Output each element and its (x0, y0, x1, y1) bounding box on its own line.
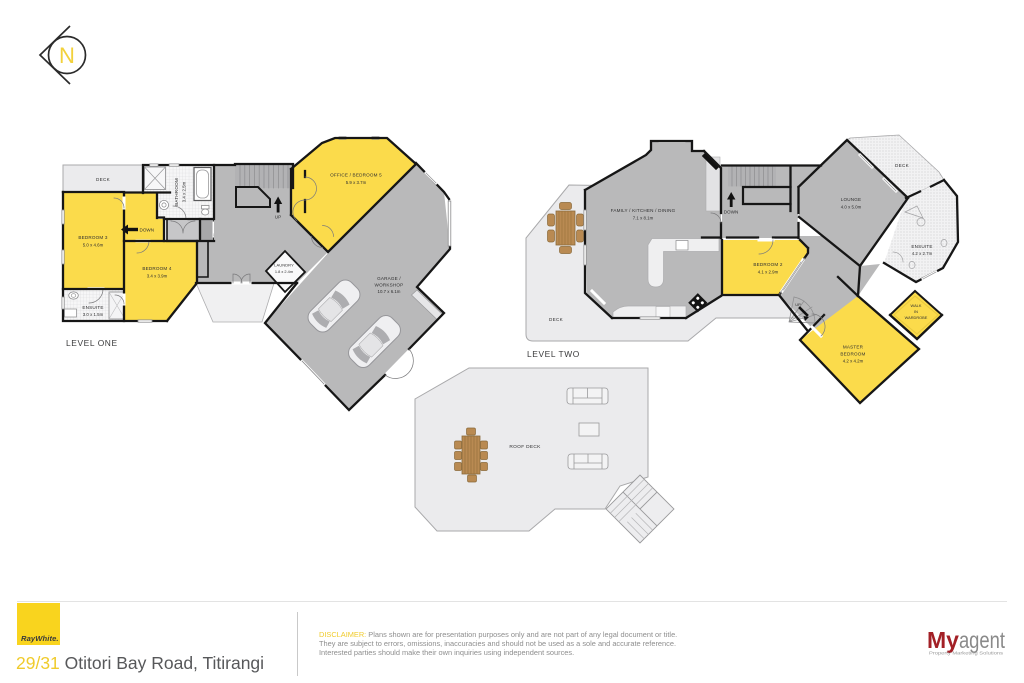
svg-text:WARDROBE: WARDROBE (905, 315, 928, 320)
svg-text:FAMILY / KITCHEN / DINING: FAMILY / KITCHEN / DINING (611, 208, 676, 213)
svg-text:DECK: DECK (549, 317, 564, 322)
svg-text:29/31 Otitori Bay Road, Titira: 29/31 Otitori Bay Road, Titirangi (16, 653, 264, 673)
svg-text:LEVEL TWO: LEVEL TWO (527, 349, 580, 359)
svg-text:Property Marketing Solutions: Property Marketing Solutions (929, 651, 1004, 657)
svg-text:LOUNGE: LOUNGE (841, 197, 862, 202)
svg-text:4.1 x 2.9m: 4.1 x 2.9m (758, 270, 779, 275)
svg-text:UP: UP (795, 302, 801, 307)
svg-text:5.9 x 3.7m: 5.9 x 3.7m (346, 180, 367, 185)
svg-text:LAUNDRY: LAUNDRY (274, 263, 294, 268)
svg-text:RayWhite.: RayWhite. (21, 634, 59, 643)
svg-text:OFFICE / BEDROOM 5: OFFICE / BEDROOM 5 (330, 173, 382, 178)
svg-text:BEDROOM 2: BEDROOM 2 (753, 262, 783, 267)
svg-text:WALK: WALK (911, 303, 922, 308)
svg-text:3.4 x 2.5m: 3.4 x 2.5m (182, 181, 187, 202)
svg-text:IN: IN (914, 309, 918, 314)
svg-text:ENSUITE: ENSUITE (82, 305, 103, 310)
svg-text:BATHROOM: BATHROOM (174, 178, 179, 206)
svg-text:Myagent: Myagent (927, 627, 1005, 653)
svg-text:BEDROOM 4: BEDROOM 4 (142, 266, 172, 271)
svg-text:BEDROOM: BEDROOM (840, 352, 865, 357)
svg-text:1.8 x 2.4m: 1.8 x 2.4m (275, 269, 293, 274)
svg-text:DISCLAIMER: Plans shown are fo: DISCLAIMER: Plans shown are for presenta… (319, 630, 677, 639)
svg-text:3.0 x 1.5m: 3.0 x 1.5m (83, 312, 104, 317)
svg-text:WORKSHOP: WORKSHOP (375, 283, 404, 288)
svg-text:LEVEL ONE: LEVEL ONE (66, 338, 118, 348)
svg-text:Interested parties should make: Interested parties should make their own… (319, 648, 574, 657)
svg-text:MASTER: MASTER (843, 345, 864, 350)
svg-text:BEDROOM 3: BEDROOM 3 (78, 235, 108, 240)
svg-text:N: N (59, 43, 75, 68)
svg-text:DOWN: DOWN (724, 210, 739, 215)
svg-text:They are subject to errors, om: They are subject to errors, omissions, i… (319, 639, 676, 648)
svg-text:3.4 x 3.9m: 3.4 x 3.9m (147, 274, 168, 279)
svg-text:DECK: DECK (895, 163, 910, 168)
svg-text:7.1 x 8.1m: 7.1 x 8.1m (633, 216, 654, 221)
svg-text:UP: UP (275, 215, 281, 220)
svg-text:10.7 x 6.1m: 10.7 x 6.1m (378, 289, 401, 294)
svg-text:4.0 x 5.0m: 4.0 x 5.0m (841, 205, 862, 210)
svg-text:ENSUITE: ENSUITE (911, 244, 932, 249)
svg-text:5.0 x 4.6m: 5.0 x 4.6m (83, 243, 104, 248)
svg-text:DECK: DECK (96, 177, 111, 182)
svg-text:DOWN: DOWN (140, 227, 155, 232)
svg-text:4.2 x 2.7m: 4.2 x 2.7m (912, 251, 933, 256)
svg-text:GARAGE /: GARAGE / (377, 276, 401, 281)
svg-text:4.2 x 4.2m: 4.2 x 4.2m (843, 359, 864, 364)
svg-text:ROOF DECK: ROOF DECK (509, 444, 541, 450)
